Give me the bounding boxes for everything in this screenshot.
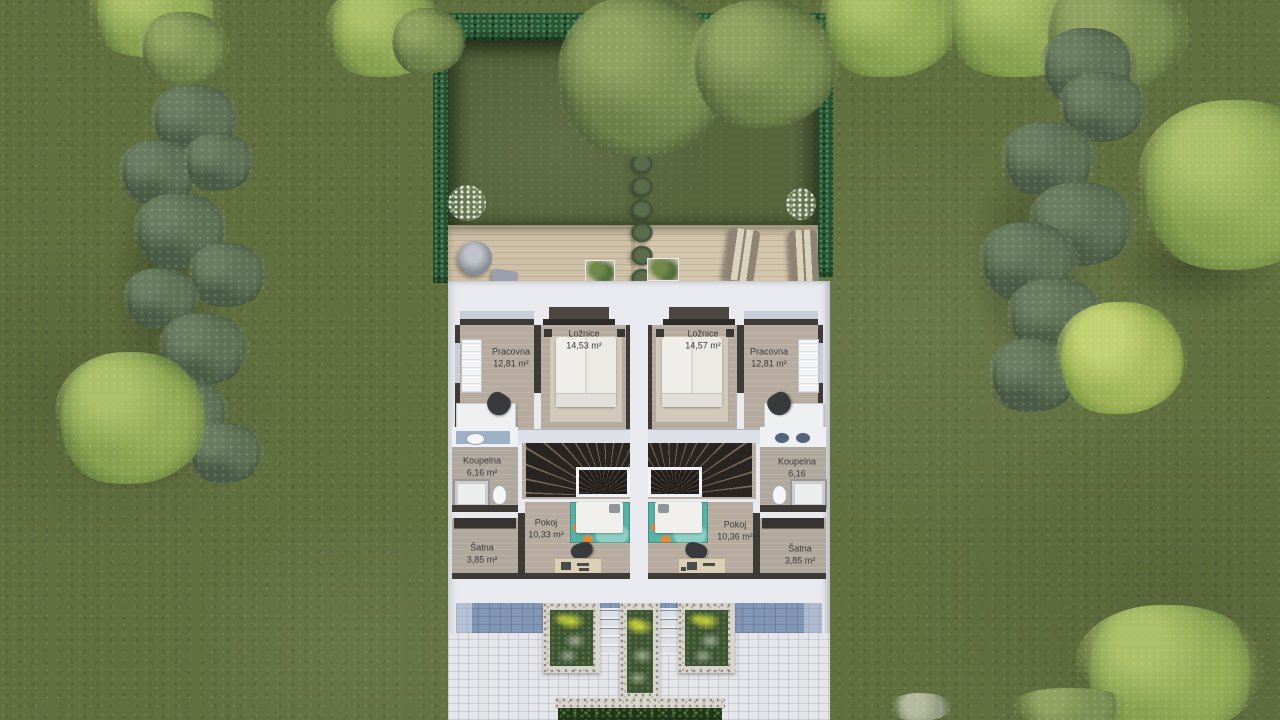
room-area: 10,33 m² xyxy=(528,529,564,541)
room-label-koupelna-left: Koupelna 6,16 m² xyxy=(463,455,501,478)
room-name: Šatna xyxy=(788,543,812,555)
wall-segment xyxy=(534,325,541,393)
sofa xyxy=(789,229,820,282)
room-label-pracovna-left: Pracovna 12,81 m² xyxy=(492,346,530,369)
room-area: 6,16 xyxy=(788,468,806,480)
room-area: 3,85 m² xyxy=(785,555,816,567)
wall-segment xyxy=(753,513,760,579)
room-label-pracovna-right: Pracovna 12,81 m² xyxy=(750,346,788,369)
room-label-satna-left: Šatna 3,85 m² xyxy=(467,542,498,565)
bush-cluster xyxy=(890,693,952,720)
nightstand xyxy=(617,329,625,337)
room-label-koupelna-right: Koupelna 6,16 xyxy=(778,456,816,479)
bed-pillow xyxy=(658,504,669,513)
flower-shrub xyxy=(448,185,486,221)
bed-pillows xyxy=(556,393,616,407)
vanity xyxy=(760,427,826,447)
desk-monitor xyxy=(561,562,571,570)
planter xyxy=(543,603,600,673)
sink xyxy=(795,432,811,444)
bed-pillow xyxy=(609,504,620,513)
desk-item xyxy=(681,567,686,571)
planter-bed xyxy=(550,610,593,666)
bush-cluster xyxy=(1012,688,1132,720)
room-area: 14,57 m² xyxy=(685,340,721,352)
deck-plant xyxy=(647,258,679,281)
wall-segment xyxy=(760,573,826,579)
desk-item xyxy=(579,568,589,571)
window-bay xyxy=(549,307,609,319)
site-plan-rendering: Pracovna 12,81 m² Ložnice 14,53 m² Ložni… xyxy=(0,0,1280,720)
wall-segment xyxy=(648,573,753,579)
room-area: 6,16 m² xyxy=(467,467,498,479)
wardrobe xyxy=(762,518,824,529)
planter xyxy=(620,603,660,700)
room-area: 3,85 m² xyxy=(467,554,498,566)
lounge-chair xyxy=(458,241,492,275)
sink xyxy=(774,432,790,444)
room-name: Ložnice xyxy=(568,328,599,340)
room-name: Pokoj xyxy=(535,517,558,529)
wall-segment xyxy=(737,325,744,393)
building-slab: Pracovna 12,81 m² Ložnice 14,53 m² Ložni… xyxy=(448,281,830,720)
desk-monitor xyxy=(687,562,697,570)
cabinet xyxy=(461,339,482,393)
bed-pillows xyxy=(662,393,722,407)
room-name: Koupelna xyxy=(778,456,816,468)
room-name: Pokoj xyxy=(724,519,747,531)
wall-segment xyxy=(452,573,518,579)
room-label-loznice-left: Ložnice 14,53 m² xyxy=(566,328,602,351)
toilet xyxy=(492,485,507,505)
wall-segment xyxy=(760,505,826,512)
window xyxy=(460,311,534,319)
sink xyxy=(466,433,485,445)
room-name: Ložnice xyxy=(687,328,718,340)
bed xyxy=(576,502,623,533)
stair-opening-right xyxy=(648,467,702,497)
room-area: 10,36 m² xyxy=(717,531,753,543)
flower-shrub xyxy=(786,188,816,220)
planter xyxy=(678,603,735,673)
nightstand xyxy=(726,329,734,337)
entrance-steps xyxy=(660,608,678,654)
room-name: Šatna xyxy=(470,542,494,554)
wardrobe xyxy=(454,518,516,529)
room-label-loznice-right: Ložnice 14,57 m² xyxy=(685,328,721,351)
room-name: Koupelna xyxy=(463,455,501,467)
window xyxy=(744,311,818,319)
party-wall xyxy=(648,325,652,429)
toilet xyxy=(772,485,787,505)
wall-segment xyxy=(525,573,630,579)
cabinet xyxy=(798,339,819,393)
party-wall xyxy=(626,325,630,429)
window-bay xyxy=(669,307,729,319)
room-label-pokoj-left: Pokoj 10,33 m² xyxy=(528,517,564,540)
deck-plant xyxy=(585,260,615,283)
room-label-pokoj-right: Pokoj 10,36 m² xyxy=(717,519,753,542)
stair-opening-left xyxy=(576,467,630,497)
entrance-steps xyxy=(600,608,620,654)
bed xyxy=(655,502,702,533)
room-name: Pracovna xyxy=(750,346,788,358)
room-area: 14,53 m² xyxy=(566,340,602,352)
front-hedge xyxy=(558,708,722,720)
desk-keyboard xyxy=(703,563,715,566)
desk-keyboard xyxy=(577,563,589,566)
nightstand xyxy=(656,329,664,337)
planter-bed xyxy=(627,610,653,693)
wall-segment xyxy=(452,505,518,512)
window xyxy=(455,343,460,383)
room-area: 12,81 m² xyxy=(493,358,529,370)
tree-canopy xyxy=(1138,100,1280,270)
room-name: Pracovna xyxy=(492,346,530,358)
nightstand xyxy=(544,329,552,337)
room-area: 12,81 m² xyxy=(751,358,787,370)
room-label-satna-right: Šatna 3,85 m² xyxy=(785,543,816,566)
planter-bed xyxy=(685,610,728,666)
wall-segment xyxy=(518,513,525,579)
